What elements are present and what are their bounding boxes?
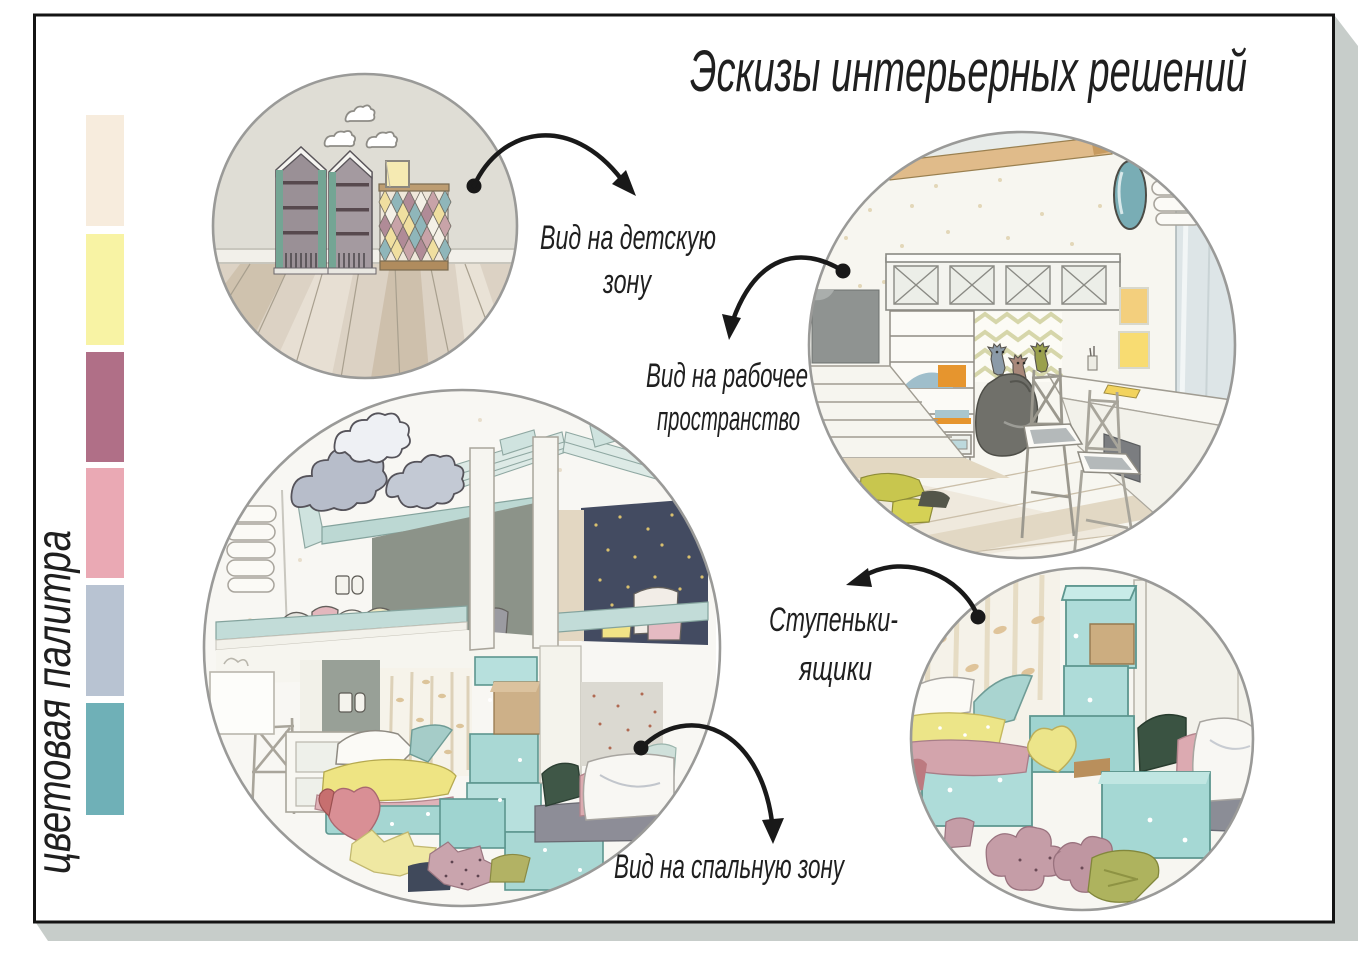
svg-text:Эскизы интерьерных решений: Эскизы интерьерных решений [690, 39, 1247, 104]
svg-text:Вид на рабочее: Вид на рабочее [646, 357, 808, 395]
svg-text:пространство: пространство [657, 400, 800, 438]
svg-text:Вид на спальную зону: Вид на спальную зону [614, 848, 845, 886]
svg-text:цветовая палитра: цветовая палитра [28, 530, 81, 874]
svg-text:Вид на детскую: Вид на детскую [540, 219, 716, 257]
svg-text:зону: зону [602, 263, 652, 301]
svg-text:ящики: ящики [798, 650, 872, 688]
svg-text:Ступеньки-: Ступеньки- [769, 601, 898, 639]
